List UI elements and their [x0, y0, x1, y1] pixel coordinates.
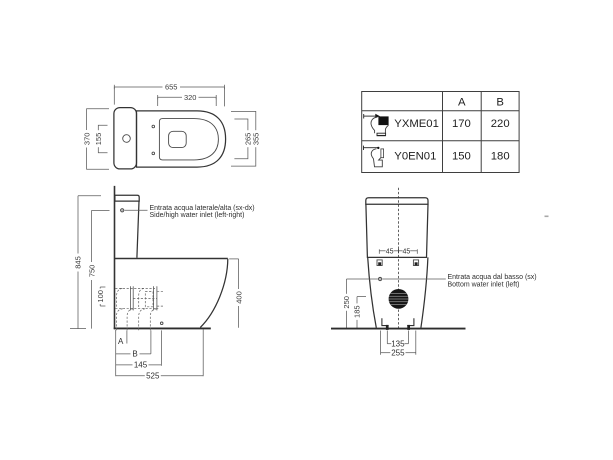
svg-text:220: 220	[491, 118, 510, 130]
svg-text:320: 320	[184, 93, 197, 102]
svg-text:Bottom water inlet (left): Bottom water inlet (left)	[448, 281, 520, 288]
svg-text:370: 370	[82, 133, 91, 146]
svg-text:45: 45	[403, 248, 411, 255]
svg-text:Entrata acqua laterale/alta (s: Entrata acqua laterale/alta (sx-dx)	[150, 205, 255, 212]
svg-text:145: 145	[134, 361, 148, 370]
svg-text:135: 135	[391, 339, 405, 348]
svg-text:YXME01: YXME01	[394, 118, 439, 130]
svg-text:Entrata acqua dal basso (sx): Entrata acqua dal basso (sx)	[448, 274, 537, 281]
svg-text:155: 155	[94, 133, 103, 146]
svg-text:170: 170	[452, 118, 471, 130]
svg-text:100: 100	[96, 290, 105, 303]
svg-text:750: 750	[87, 265, 96, 278]
svg-text:185: 185	[353, 305, 362, 318]
svg-text:655: 655	[165, 83, 178, 92]
svg-text:355: 355	[252, 133, 261, 146]
svg-text:45: 45	[386, 248, 394, 255]
svg-text:525: 525	[146, 372, 160, 381]
svg-text:845: 845	[74, 256, 83, 269]
svg-text:Side/high water inlet (left-ri: Side/high water inlet (left-right)	[150, 212, 245, 219]
svg-text:255: 255	[391, 348, 405, 357]
svg-text:Y0EN01: Y0EN01	[394, 151, 436, 163]
svg-text:250: 250	[342, 296, 351, 309]
svg-text:A: A	[118, 337, 124, 346]
svg-text:150: 150	[452, 151, 471, 163]
svg-text:400: 400	[235, 291, 244, 304]
svg-text:A: A	[458, 96, 466, 108]
svg-text:B: B	[496, 96, 504, 108]
svg-text:B: B	[132, 350, 137, 359]
svg-text:180: 180	[491, 151, 510, 163]
